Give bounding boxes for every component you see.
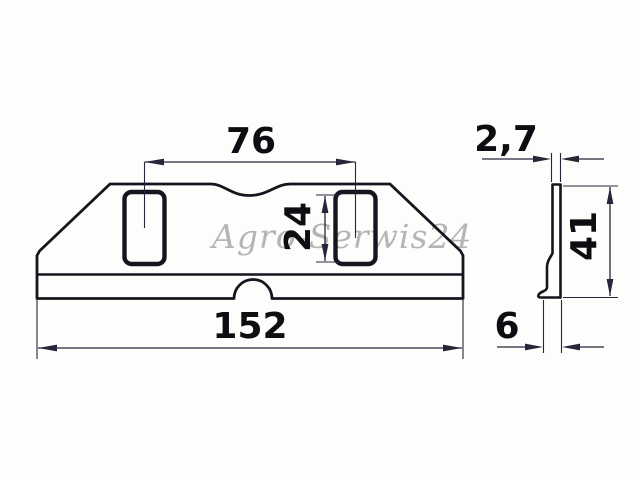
dim-slot-length-label: 24: [278, 202, 319, 252]
arrowhead-right-icon: [525, 344, 543, 351]
arrowhead-left-icon: [38, 345, 57, 352]
dim-thickness-label: 2,7: [474, 119, 538, 160]
arrowhead-left-icon: [145, 159, 165, 166]
arrowhead-right-icon: [443, 345, 462, 352]
side-profile-outline: [538, 185, 560, 298]
drawing-svg: Agro-Serwis24 76 24 152: [0, 0, 640, 480]
dim-height: 41: [563, 186, 618, 298]
arrowhead-down-icon: [607, 279, 614, 296]
arrowhead-up-icon: [607, 187, 614, 204]
dim-slot-spacing-label: 76: [226, 121, 276, 162]
side-view: [538, 185, 560, 298]
arrowhead-right-icon: [336, 159, 356, 166]
dim-overall-length: 152: [37, 300, 463, 359]
dim-thickness: 2,7: [474, 119, 604, 182]
arrowhead-up-icon: [322, 196, 329, 213]
dim-slot-spacing: 76: [145, 121, 356, 165]
dim-edge-width-label: 6: [494, 306, 519, 347]
dim-overall-length-label: 152: [212, 306, 287, 347]
dim-edge-width: 6: [494, 300, 604, 353]
blade-technical-drawing: Agro-Serwis24 76 24 152: [0, 0, 640, 480]
arrowhead-left-icon: [561, 156, 579, 163]
arrowhead-left-icon: [562, 344, 580, 351]
dim-height-label: 41: [564, 211, 605, 261]
